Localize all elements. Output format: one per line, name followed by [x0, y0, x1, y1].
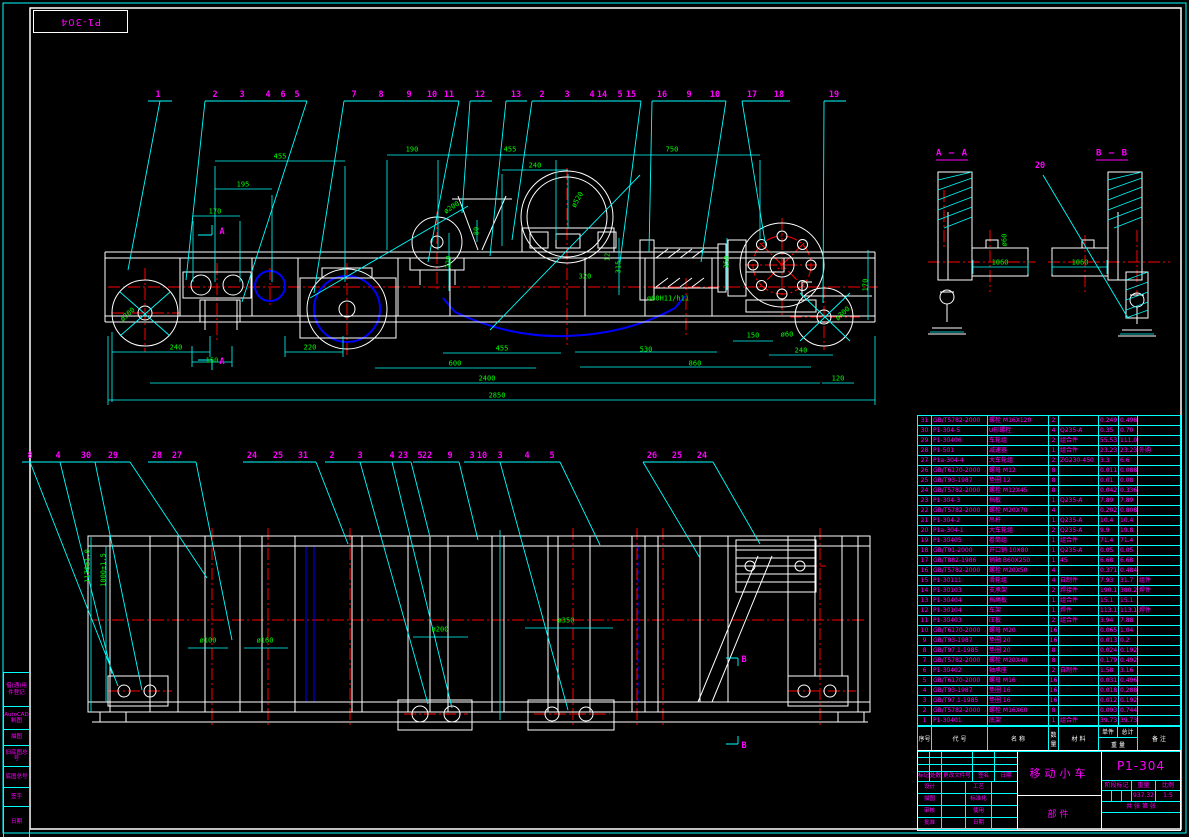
parts-list-cell: 0.08 [1119, 476, 1138, 486]
dimension-label: 530 [640, 347, 653, 354]
parts-list-cell: 16 [1049, 676, 1059, 686]
parts-list-cell: 吊杆 [988, 516, 1049, 526]
parts-list-cell: GB/T6170-2000 [932, 466, 988, 476]
dimension-label: 170 [863, 279, 870, 292]
corner-drawing-number: P1-304 [33, 10, 128, 33]
parts-list-cell: 8 [1049, 486, 1059, 496]
balloon-label: 10 [710, 91, 720, 100]
parts-list-cell: 71.4 [1119, 536, 1138, 546]
parts-list-cell: 焊接件 [1059, 586, 1099, 596]
parts-list-cell: 31.7 [1119, 576, 1138, 586]
parts-list-cell: 111.06 [1119, 436, 1138, 446]
parts-list-row: 9GB/T93-1987垫圈 20160.0130.2 [918, 636, 1180, 646]
balloon-label: 25 [672, 452, 682, 461]
balloon-label: 16 [657, 91, 667, 100]
balloon-label: 11 [444, 91, 454, 100]
parts-list-cell: GB/T6170-2000 [932, 626, 988, 636]
parts-list-cell [1138, 676, 1180, 686]
dimension-label: 455 [274, 154, 287, 161]
parts-list-cell: 0.35 [1099, 426, 1119, 436]
parts-list-cell: GB/T5782-2000 [932, 656, 988, 666]
parts-list-cell: 1.58 [1099, 666, 1119, 676]
parts-list-cell: 8 [918, 646, 932, 656]
parts-list-cell: 螺栓 M20X70 [988, 506, 1049, 516]
parts-list-cell: 0.288 [1119, 686, 1138, 696]
balloon-label: 3 [497, 452, 502, 461]
col-header-weight: 单件 总计 重 量 [1099, 726, 1138, 751]
parts-list-cell: 2 [1049, 416, 1059, 426]
dimension-label: ø160 [257, 638, 274, 645]
dimension-label: 1060 [992, 260, 1009, 267]
parts-list-cell: 71.4 [1099, 536, 1119, 546]
parts-list-cell [1138, 466, 1180, 476]
balloon-label: 8 [378, 91, 383, 100]
parts-list-cell [1138, 626, 1180, 636]
parts-list-cell: 16 [1049, 626, 1059, 636]
dimension-label: 860 [689, 361, 702, 368]
parts-list-cell [1059, 636, 1099, 646]
section-view-label: A — A [936, 150, 968, 161]
parts-list-cell: 垫圈 20 [988, 646, 1049, 656]
dimension-label: 350 [724, 256, 731, 269]
parts-list-cell: P1-30111 [932, 576, 988, 586]
parts-list-cell: 自制件 [1059, 576, 1099, 586]
parts-list-cell: 0.011 [1099, 466, 1119, 476]
balloon-label: 4 [265, 91, 270, 100]
balloon-label: 10 [427, 91, 437, 100]
parts-list-row: 2GB/T5782-2000螺栓 M16X6080.0930.744 [918, 706, 1180, 716]
parts-list-cell: 1 [1049, 556, 1059, 566]
revision-grid [918, 751, 1017, 772]
parts-list-row: 22GB/T5782-2000螺栓 M20X7040.2020.808 [918, 506, 1180, 516]
parts-list-cell: 0.065 [1099, 626, 1119, 636]
parts-list-cell [1138, 536, 1180, 546]
parts-list-cell: P1-30404 [932, 596, 988, 606]
balloon-label: 23 [398, 452, 408, 461]
parts-list-row: 20P1a-304-1大车轮组2Q235-A9.919.8 [918, 526, 1180, 536]
parts-list-cell: 8 [1049, 476, 1059, 486]
parts-list-cell: 组合件 [1059, 616, 1099, 626]
parts-list-cell [1059, 486, 1099, 496]
parts-list-cell: GB/T5782-2000 [932, 416, 988, 426]
parts-list-cell: 大车轮组 [988, 456, 1049, 466]
section-marker-label: B [741, 656, 746, 665]
parts-list-cell [1138, 416, 1180, 426]
parts-list-cell: 组合件 [1059, 446, 1099, 456]
parts-list-cell: 组合件 [1059, 436, 1099, 446]
balloon-label: 3 [357, 452, 362, 461]
dimension-label: 2400 [479, 376, 496, 383]
parts-list-cell: 31 [918, 416, 932, 426]
parts-list-cell: 3.16 [1119, 666, 1138, 676]
parts-list-cell: 开口销 10X80 [988, 546, 1049, 556]
parts-list-cell: 8 [1049, 706, 1059, 716]
parts-list-cell: P1-304-3 [932, 496, 988, 506]
parts-list-row: 14P1-30103支承架2焊接件190.1380.2焊件 [918, 586, 1180, 596]
parts-list-row: 12P1-30104车架1焊件113.15113.15焊件 [918, 606, 1180, 616]
balloon-label: 9 [686, 91, 691, 100]
parts-list-table: 31GB/T5782-2000螺栓 M16X12020.2490.49830P1… [917, 415, 1181, 727]
parts-list-row: 19P1-30405卷筒组1组合件71.471.4 [918, 536, 1180, 546]
parts-list-cell: 4 [1049, 576, 1059, 586]
parts-list-row: 30P1-304-5U形螺栓4Q235-A0.350.70 [918, 426, 1180, 436]
parts-list-cell: GB/T93-1987 [932, 686, 988, 696]
parts-list-cell: 2 [1049, 456, 1059, 466]
parts-list-cell: 组件 [1138, 576, 1180, 586]
dimension-label: 195 [237, 182, 250, 189]
parts-list-cell: 1 [1049, 606, 1059, 616]
parts-list-cell [1138, 526, 1180, 536]
parts-list-cell: 0.249 [1099, 416, 1119, 426]
col-header-name: 名 称 [988, 726, 1049, 751]
parts-list-cell: Q235-A [1059, 546, 1099, 556]
dimension-label: 12 [605, 253, 612, 261]
balloon-label: 3 [564, 91, 569, 100]
parts-list-cell: 20 [918, 526, 932, 536]
parts-list-cell [1059, 686, 1099, 696]
margin-label: 底图总号 [3, 767, 30, 788]
dimension-label: 455 [496, 346, 509, 353]
col-header-code: 代 号 [932, 726, 988, 751]
parts-list-cell: 14 [918, 586, 932, 596]
parts-list-cell [1138, 566, 1180, 576]
col-header-qty: 数量 [1049, 726, 1059, 751]
parts-list-cell: 0.093 [1099, 706, 1119, 716]
balloon-label: 14 [597, 91, 607, 100]
section-marker-label: A [219, 228, 224, 237]
parts-list-cell: 4 [1049, 566, 1059, 576]
plan-view [88, 536, 870, 730]
stage-label: 阶段标记 [1102, 781, 1132, 790]
parts-list-cell: 车轮组 [988, 436, 1049, 446]
parts-list-cell: GB/T5782-2000 [932, 506, 988, 516]
parts-list-cell: 滑轮组 [988, 576, 1049, 586]
section-marker-label: 20 [1035, 162, 1045, 171]
parts-list-cell [1138, 666, 1180, 676]
parts-list-cell: GB/T5782-2000 [932, 486, 988, 496]
balloon-label: 4 [589, 91, 594, 100]
parts-list-cell: 0.179 [1099, 656, 1119, 666]
margin-strip: 借(通)用件登记AutoCAD制图描图旧底图总号底图总号签字日期 [3, 672, 30, 837]
parts-list-cell: 0.492 [1119, 656, 1138, 666]
parts-list-cell: 焊件 [1059, 606, 1099, 616]
dimension-label: 170 [209, 209, 222, 216]
parts-list-cell [1138, 496, 1180, 506]
col-header-unit-weight: 单件 [1099, 726, 1118, 737]
parts-list-cell: 15.1 [1119, 596, 1138, 606]
parts-list-cell [1059, 416, 1099, 426]
parts-list-cell [1059, 506, 1099, 516]
parts-list-cell: P1-30103 [932, 586, 988, 596]
title-zone: 移动小车 部件 [1017, 751, 1102, 830]
parts-list-cell: 0.70 [1119, 426, 1138, 436]
parts-list-row: 16GB/T5782-2000螺栓 M20X5040.3710.484 [918, 566, 1180, 576]
margin-label: 旧底图总号 [3, 746, 30, 767]
margin-label: 日期 [3, 807, 30, 837]
parts-list-cell: 113.15 [1099, 606, 1119, 616]
parts-list-cell: 1 [1049, 516, 1059, 526]
parts-list-cell: Q235-A [1059, 516, 1099, 526]
parts-list-cell: 螺栓 M16X60 [988, 706, 1049, 716]
dimension-label: ø60 [781, 332, 794, 339]
balloon-label: 26 [647, 452, 657, 461]
parts-list-cell: 13 [918, 596, 932, 606]
section-b-b [1052, 172, 1156, 336]
parts-list-cell: 2 [1049, 586, 1059, 596]
parts-list-cell: GB/T91-2000 [932, 546, 988, 556]
parts-list-cell: 1 [1049, 546, 1059, 556]
section-marker-label: B [741, 742, 746, 751]
parts-list-row: 29P1-30406车轮组2组合件55.53111.06 [918, 436, 1180, 446]
balloon-label: 24 [697, 452, 707, 461]
parts-list-cell: 27 [918, 456, 932, 466]
parts-list-cell: 垫圈 20 [988, 636, 1049, 646]
parts-list-cell [1059, 466, 1099, 476]
signature-rows: 设计工艺 描图标准化 审核使用 批准日期 [918, 782, 1017, 830]
margin-label: 借(通)用件登记 [3, 672, 30, 707]
balloon-label: 5 [294, 91, 299, 100]
parts-list-cell: 0.371 [1099, 566, 1119, 576]
parts-list-cell: 10 [918, 626, 932, 636]
balloon-label: 8 [27, 452, 32, 461]
parts-list-cell: 15.1 [1099, 596, 1119, 606]
balloon-label: 12 [475, 91, 485, 100]
balloon-label: 31 [298, 452, 308, 461]
parts-list-cell: 0.018 [1099, 686, 1119, 696]
parts-list-cell: 0.042 [1099, 486, 1119, 496]
parts-list-cell: 挡板 [988, 496, 1049, 506]
parts-list-cell: GB/T5782-2000 [932, 566, 988, 576]
parts-list-cell: 螺母 M16 [988, 676, 1049, 686]
parts-list-cell: GB/T93-1987 [932, 636, 988, 646]
section-marker-label: A [219, 358, 224, 367]
parts-list-cell [1138, 696, 1180, 706]
parts-list-row: 18GB/T91-2000开口销 10X801Q235-A0.050.05 [918, 546, 1180, 556]
dimension-label: 1000±1.5 [101, 553, 108, 587]
parts-list-cell: 12 [918, 606, 932, 616]
margin-label: 描图 [3, 730, 30, 746]
parts-list-cell: 2 [1049, 616, 1059, 626]
parts-list-cell: 7.89 [1119, 496, 1138, 506]
parts-list-row: 23P1-304-3挡板1Q235-A7.897.89 [918, 496, 1180, 506]
parts-list-cell [1059, 656, 1099, 666]
dimension-label: 220 [446, 256, 453, 269]
parts-list-cell [1059, 706, 1099, 716]
col-header-material: 材 料 [1059, 726, 1099, 751]
parts-list-cell: 5 [918, 676, 932, 686]
main-elevation-view [105, 171, 875, 349]
parts-list-cell: 21 [918, 516, 932, 526]
parts-list-cell: 3 [918, 696, 932, 706]
parts-list-cell: 6.68 [1099, 556, 1119, 566]
parts-list-cell: 8 [1049, 646, 1059, 656]
parts-list-cell [1138, 636, 1180, 646]
parts-list-cell: 1 [1049, 596, 1059, 606]
parts-list-cell: 4 [918, 686, 932, 696]
parts-list-cell [1138, 456, 1180, 466]
parts-list-cell [1138, 476, 1180, 486]
parts-list-cell: 7.88 [1119, 616, 1138, 626]
parts-list-row: 26GB/T6170-2000螺母 M1280.0110.088 [918, 466, 1180, 476]
parts-list-cell: 4 [1049, 426, 1059, 436]
parts-list-cell: 2 [1049, 436, 1059, 446]
parts-list-cell [1138, 656, 1180, 666]
parts-list-cell: 垫圈 12 [988, 476, 1049, 486]
parts-list-cell: 19.8 [1119, 526, 1138, 536]
parts-list-row: 28P1-501减速器1组合件23.2323.23外购 [918, 446, 1180, 456]
parts-list-cell: 轴承座 [988, 666, 1049, 676]
parts-list-cell: 6.68 [1119, 556, 1138, 566]
parts-list-cell: 0.336 [1119, 486, 1138, 496]
parts-list-cell: 外购 [1138, 446, 1180, 456]
parts-list-cell: 23.23 [1119, 446, 1138, 456]
parts-list-cell: 2 [918, 706, 932, 716]
parts-list-cell: 0.202 [1099, 506, 1119, 516]
parts-list-cell: GB/T97.1-1985 [932, 696, 988, 706]
parts-list-cell [1059, 646, 1099, 656]
parts-list-cell: 6 [918, 666, 932, 676]
parts-list-cell: 0.744 [1119, 706, 1138, 716]
balloon-label: 30 [81, 452, 91, 461]
balloon-label: 4 [55, 452, 60, 461]
parts-list-cell [1138, 486, 1180, 496]
parts-list-cell: 螺母 M12 [988, 466, 1049, 476]
balloon-label: 6 [280, 91, 285, 100]
scale-label: 比例 [1156, 781, 1180, 790]
parts-list-cell: Q235-A [1059, 426, 1099, 436]
parts-list-cell: 0.088 [1119, 466, 1138, 476]
parts-list-cell: 垫圈 16 [988, 686, 1049, 696]
dimension-label: 220 [304, 345, 317, 352]
parts-list-header: 序号 代 号 名 称 数量 材 料 单件 总计 重 量 备 注 [917, 725, 1181, 752]
dimension-label: 455 [504, 147, 517, 154]
parts-list-cell: P1-30406 [932, 436, 988, 446]
parts-list-cell: 380.2 [1119, 586, 1138, 596]
balloon-label: 9 [406, 91, 411, 100]
dimension-label: 2850 [489, 393, 506, 400]
parts-list-cell: 9.9 [1099, 526, 1119, 536]
balloon-label: 24 [247, 452, 257, 461]
dimension-label: 320 [579, 274, 592, 281]
parts-list-cell: GB/T6170-2000 [932, 676, 988, 686]
parts-list-row: 3GB/T97.1-1985垫圈 16160.0120.192 [918, 696, 1180, 706]
parts-list-cell: 大车轮组 [988, 526, 1049, 536]
parts-list-cell [1138, 616, 1180, 626]
parts-list-cell: 10.4 [1099, 516, 1119, 526]
dimension-label: 240 [795, 348, 808, 355]
parts-list-cell: 3.3 [1099, 456, 1119, 466]
section-hatching [930, 172, 1154, 334]
revision-zone: 标记 处数 更改文件号 签名 日期 设计工艺 描图标准化 审核使用 批准日期 [918, 751, 1017, 830]
parts-list-cell: 113.15 [1119, 606, 1138, 616]
parts-list-cell: 0.05 [1099, 546, 1119, 556]
parts-list-cell: 22 [918, 506, 932, 516]
parts-list-cell: P1-30402 [932, 666, 988, 676]
parts-list-cell: P1-30403 [932, 616, 988, 626]
dimension-label: ø200 [432, 627, 449, 634]
parts-list-cell: 0.2 [1119, 636, 1138, 646]
parts-list-cell: P1a-304-4 [932, 456, 988, 466]
dimension-label: ø350 [558, 618, 575, 625]
parts-list-cell [1059, 676, 1099, 686]
rope-lines [255, 271, 685, 702]
balloon-label: 27 [172, 452, 182, 461]
parts-list-cell: Q235-A [1059, 496, 1099, 506]
parts-list-row: 8GB/T97.1-1985垫圈 2080.0240.192 [918, 646, 1180, 656]
parts-list-cell: 减速器 [988, 446, 1049, 456]
balloon-label: 3 [469, 452, 474, 461]
parts-list-cell: 卷筒组 [988, 536, 1049, 546]
parts-list-cell: 0.498 [1119, 416, 1138, 426]
parts-list-row: 10GB/T6170-2000螺母 M20160.0651.04 [918, 626, 1180, 636]
parts-list-cell: 55.53 [1099, 436, 1119, 446]
parts-list-cell: 16 [1049, 696, 1059, 706]
parts-list-cell: 7.93 [1099, 576, 1119, 586]
parts-list-row: 17GB/T882-1986销轴 B60X2501456.686.68 [918, 556, 1180, 566]
parts-list-cell: 自制件 [1059, 666, 1099, 676]
dimension-label: ø60 [1002, 234, 1009, 247]
balloon-label: 29 [108, 452, 118, 461]
dimension-label: 600 [449, 361, 462, 368]
parts-list-cell: 16 [1049, 636, 1059, 646]
parts-list-cell [1059, 696, 1099, 706]
parts-list-cell: 8 [1049, 466, 1059, 476]
parts-list-cell: 7.89 [1099, 496, 1119, 506]
parts-list-cell: 0.031 [1099, 676, 1119, 686]
balloon-label: 4 [389, 452, 394, 461]
weight-label: 重量 [1132, 781, 1156, 790]
drawing-title: 移动小车 [1018, 751, 1101, 796]
parts-list-cell: 29 [918, 436, 932, 446]
col-header-total-weight: 总计 [1118, 726, 1137, 737]
balloon-label: 15 [626, 91, 636, 100]
parts-list-cell [1138, 426, 1180, 436]
parts-list-cell: 组合件 [1059, 596, 1099, 606]
parts-list-cell [1138, 596, 1180, 606]
weight-value: 937.32 [1132, 791, 1156, 801]
balloon-label: 5 [617, 91, 622, 100]
dimension-label: 120 [832, 376, 845, 383]
margin-label: 签字 [3, 788, 30, 807]
parts-list-cell: P1-30405 [932, 536, 988, 546]
dimension-label: 80 [474, 227, 481, 235]
parts-list-cell: 挡绳板 [988, 596, 1049, 606]
parts-list-cell: 9 [918, 636, 932, 646]
parts-list-cell: 螺栓 M12X45 [988, 486, 1049, 496]
parts-list-cell [1059, 626, 1099, 636]
parts-list-cell: P1-304-2 [932, 516, 988, 526]
parts-list-cell: 车架 [988, 606, 1049, 616]
balloon-label: 28 [152, 452, 162, 461]
parts-list-cell: 10.4 [1119, 516, 1138, 526]
balloon-label: 19 [829, 91, 839, 100]
parts-list-cell [1138, 506, 1180, 516]
drawing-subtitle: 部件 [1018, 796, 1101, 830]
parts-list-cell: P1-30104 [932, 606, 988, 616]
balloon-label: 7 [351, 91, 356, 100]
parts-list-cell: GB/T93-1987 [932, 476, 988, 486]
parts-list-cell: 26 [918, 466, 932, 476]
dimension-label: 150 [747, 333, 760, 340]
parts-list-cell: U形螺栓 [988, 426, 1049, 436]
parts-list-cell: 焊件 [1138, 606, 1180, 616]
parts-list-cell: 0.01 [1099, 476, 1119, 486]
balloon-label: 2 [539, 91, 544, 100]
parts-list-cell: 螺栓 M20X50 [988, 566, 1049, 576]
balloon-label: 4 [524, 452, 529, 461]
parts-list-cell: 15 [918, 576, 932, 586]
parts-list-cell: 45 [1059, 556, 1099, 566]
